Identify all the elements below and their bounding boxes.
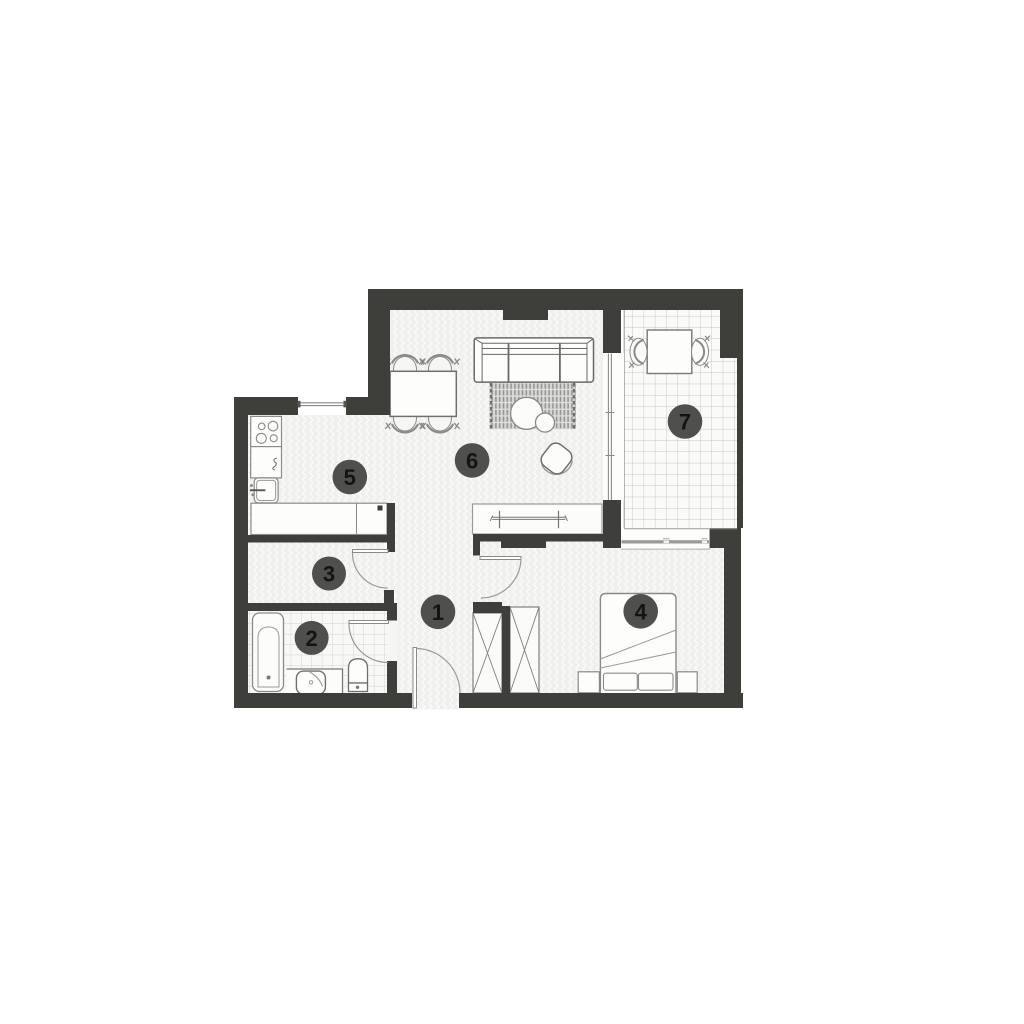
svg-text:3: 3 bbox=[323, 562, 335, 587]
svg-text:2: 2 bbox=[305, 626, 317, 651]
svg-text:6: 6 bbox=[466, 448, 478, 473]
svg-text:4: 4 bbox=[635, 599, 648, 624]
svg-text:7: 7 bbox=[679, 410, 691, 435]
svg-text:5: 5 bbox=[344, 465, 356, 490]
svg-text:1: 1 bbox=[432, 600, 444, 625]
